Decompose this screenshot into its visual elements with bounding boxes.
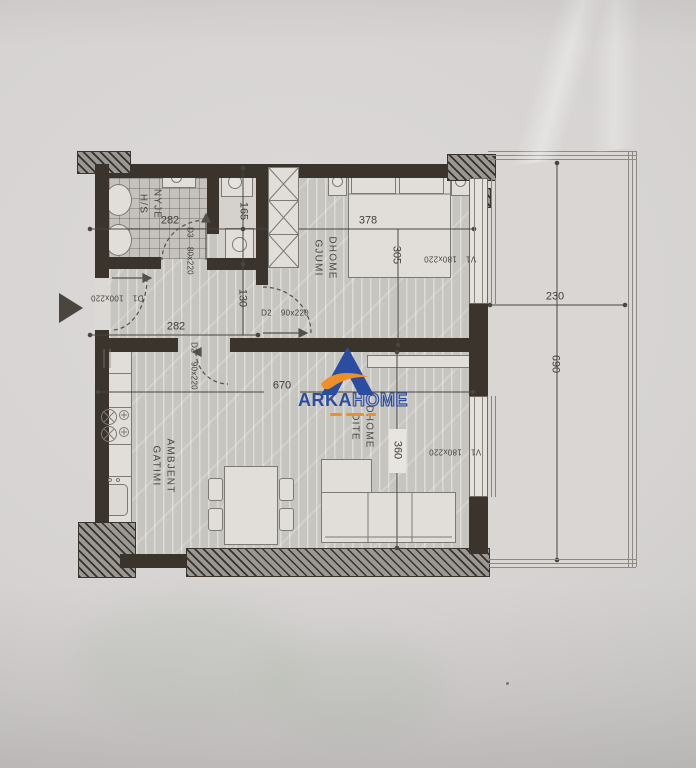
dim-bathroom-depth: 165 (237, 202, 250, 220)
dim-bathroom-width: 282 (161, 215, 179, 228)
label-bathroom-door: D380x220 (185, 227, 194, 275)
paper-speck (506, 682, 509, 685)
arka-logo-wordmark: ARKAHOME (297, 390, 409, 411)
label-living-window: V1180x220 (429, 447, 481, 456)
entrance-arrow (59, 293, 83, 323)
floor-plan-photo: NYJEH/S DHOMEGJUMI DHOMEDITE AMBJENTGATI… (0, 0, 696, 768)
arka-logo-icon (319, 346, 376, 396)
wardrobe (269, 168, 299, 268)
dim-living-width: 670 (273, 380, 291, 393)
room-label-living: DHOMEDITE (349, 405, 376, 448)
room-label-bedroom: DHOMEGJUMI (312, 236, 339, 279)
dim-living-depth: 360 (391, 441, 404, 459)
dim-balcony-width: 230 (546, 291, 564, 304)
dim-bedroom-depth: 305 (390, 246, 403, 264)
logo-tagline-marks (326, 413, 380, 416)
room-label-bathroom: NYJEH/S (137, 189, 164, 219)
dim-corridor-width: 282 (167, 321, 185, 334)
logo-text-home: HOME (352, 390, 408, 410)
label-bedroom-window: V1180x220 (424, 254, 476, 263)
label-living-door: D290x220 (189, 342, 198, 390)
dim-corridor-depth: 130 (236, 289, 249, 307)
label-entrance-door: D1100x220 (91, 293, 144, 302)
dim-bedroom-width: 378 (359, 215, 377, 228)
logo-text-arka: ARKA (298, 390, 352, 410)
balcony-railing (488, 151, 637, 568)
stove-burners (102, 183, 177, 482)
dim-balcony-length: 690 (549, 355, 562, 373)
label-bedroom-door: D290x220 (261, 308, 309, 317)
room-label-kitchen: AMBJENTGATIMI (150, 438, 177, 493)
